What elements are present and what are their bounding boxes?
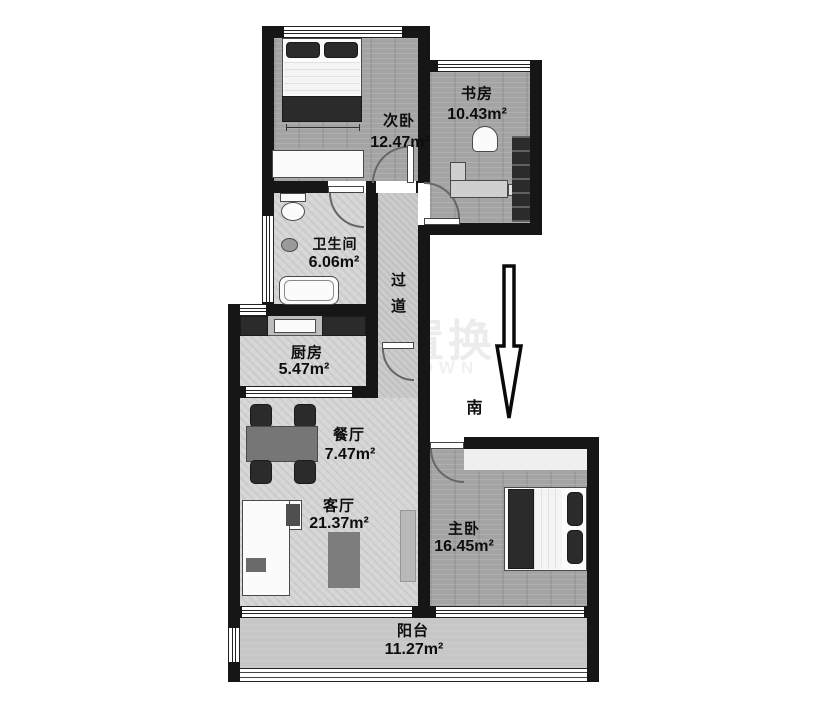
room-label-kitchen: 厨房 bbox=[291, 342, 323, 363]
dining-chair bbox=[250, 460, 272, 484]
room-label-living: 客厅 bbox=[323, 495, 355, 516]
room-area-kitchen: 5.47m² bbox=[279, 361, 330, 379]
bed-blanket bbox=[282, 96, 362, 122]
window-kitchen-small bbox=[240, 304, 266, 316]
wall bbox=[530, 60, 542, 235]
bed-sheet bbox=[534, 489, 562, 569]
room-label-study: 书房 bbox=[461, 83, 493, 104]
wall bbox=[418, 26, 430, 618]
sliding-door-living-balcony bbox=[242, 606, 412, 618]
floorplan-canvas: 城置换 ENTOWN bbox=[0, 0, 840, 702]
door-leaf-study bbox=[424, 218, 460, 225]
wall bbox=[228, 304, 240, 682]
dining-chair bbox=[294, 460, 316, 484]
window-second-bedroom bbox=[284, 26, 402, 38]
window-balcony-left bbox=[228, 628, 240, 662]
sliding-door-master-balcony bbox=[436, 606, 584, 618]
dining-chair bbox=[294, 404, 316, 428]
room-label-hallway: 过道 bbox=[390, 268, 407, 319]
desk bbox=[450, 180, 508, 198]
dimension-line bbox=[286, 124, 360, 131]
dining-chair bbox=[250, 404, 272, 428]
window-kitchen-pass bbox=[246, 386, 352, 398]
sofa bbox=[242, 500, 290, 596]
toilet-tank bbox=[280, 193, 306, 202]
pillow bbox=[567, 492, 583, 526]
stove bbox=[240, 316, 268, 336]
window-bathroom bbox=[262, 216, 274, 302]
pillow bbox=[567, 530, 583, 564]
pillow bbox=[286, 42, 320, 58]
sink bbox=[281, 238, 298, 252]
desk-chair bbox=[472, 126, 498, 152]
room-area-master-bedroom: 16.45m² bbox=[434, 538, 494, 556]
balcony-railing bbox=[240, 668, 587, 682]
bed-blanket bbox=[508, 489, 534, 569]
room-label-master-bedroom: 主卧 bbox=[448, 518, 480, 539]
window-study bbox=[438, 60, 530, 72]
kitchen-sink bbox=[274, 319, 316, 333]
room-area-study: 10.43m² bbox=[447, 106, 507, 124]
ottoman bbox=[246, 558, 266, 572]
compass-label: 南 bbox=[466, 394, 483, 418]
coffee-table bbox=[328, 532, 360, 588]
room-label-balcony: 阳台 bbox=[397, 620, 429, 641]
room-label-bathroom: 卫生间 bbox=[313, 234, 358, 254]
room-area-dining: 7.47m² bbox=[325, 446, 376, 464]
bookshelf bbox=[512, 136, 530, 222]
wall bbox=[587, 437, 599, 682]
kitchen-cabinet bbox=[322, 316, 366, 336]
door-leaf-master-bedroom bbox=[430, 442, 464, 449]
tv-cabinet bbox=[400, 510, 416, 582]
south-arrow bbox=[490, 262, 526, 424]
room-area-living: 21.37m² bbox=[309, 515, 369, 533]
room-label-dining: 餐厅 bbox=[333, 424, 365, 445]
dining-table bbox=[246, 426, 318, 462]
room-area-second-bedroom: 12.47m² bbox=[370, 134, 430, 152]
toilet bbox=[281, 202, 305, 221]
bench-cabinet bbox=[272, 150, 364, 178]
pillow bbox=[324, 42, 358, 58]
wall bbox=[366, 181, 378, 398]
bed-sheet bbox=[284, 62, 360, 94]
room-area-bathroom: 6.06m² bbox=[309, 254, 360, 272]
door-leaf-hallway bbox=[382, 342, 414, 349]
bathtub-inner bbox=[284, 280, 334, 301]
room-label-second-bedroom: 次卧 bbox=[383, 110, 415, 131]
wardrobe bbox=[464, 449, 587, 471]
room-area-balcony: 11.27m² bbox=[385, 641, 444, 659]
side-table bbox=[286, 504, 300, 526]
door-leaf-bathroom bbox=[328, 186, 364, 193]
